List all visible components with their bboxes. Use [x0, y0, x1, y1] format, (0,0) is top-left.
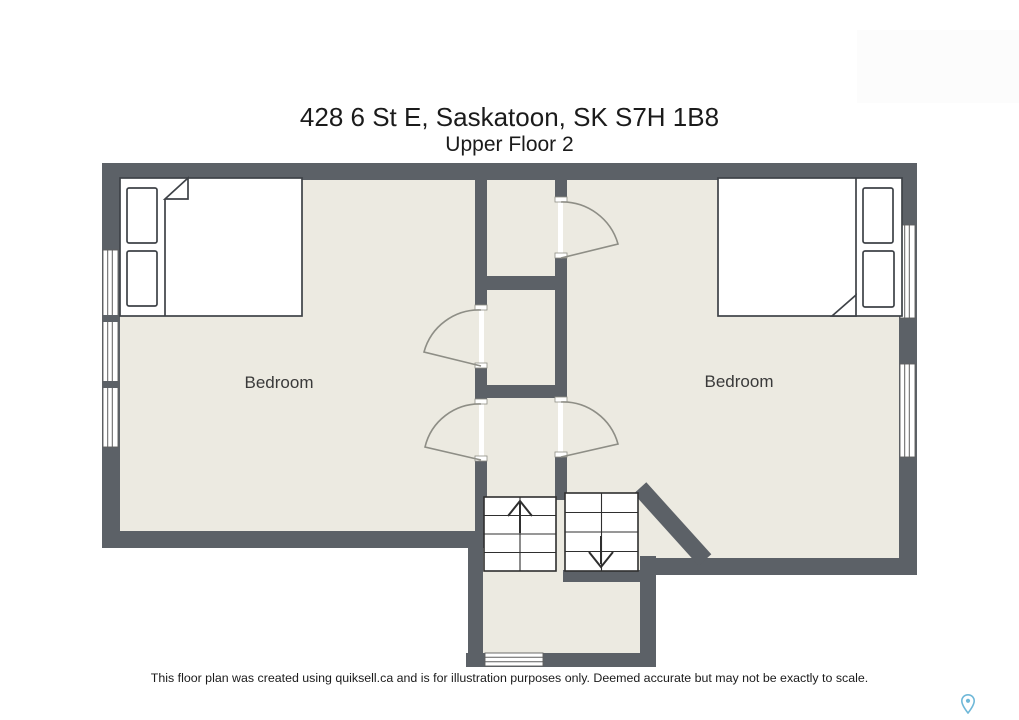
room-label-right-bedroom: Bedroom	[705, 372, 774, 392]
room-label-left-bedroom: Bedroom	[245, 373, 314, 393]
disclaimer-text: This floor plan was created using quikse…	[0, 671, 1019, 685]
stair-flight-up	[484, 497, 556, 571]
window-vestibule	[485, 653, 543, 666]
floor-plan-drawing	[0, 0, 1019, 720]
pillow	[127, 188, 157, 243]
window-left-wall	[103, 250, 118, 447]
bed-left	[120, 178, 302, 316]
pillow	[127, 251, 157, 306]
pillow	[863, 188, 893, 243]
window-right-wall-lower	[900, 364, 915, 457]
pillow	[863, 251, 894, 307]
bed-right	[718, 178, 902, 316]
floor-plan-page: 428 6 St E, Saskatoon, SK S7H 1B8 Upper …	[0, 0, 1019, 720]
location-pin-icon	[961, 694, 975, 714]
stair-flight-down	[565, 493, 638, 571]
